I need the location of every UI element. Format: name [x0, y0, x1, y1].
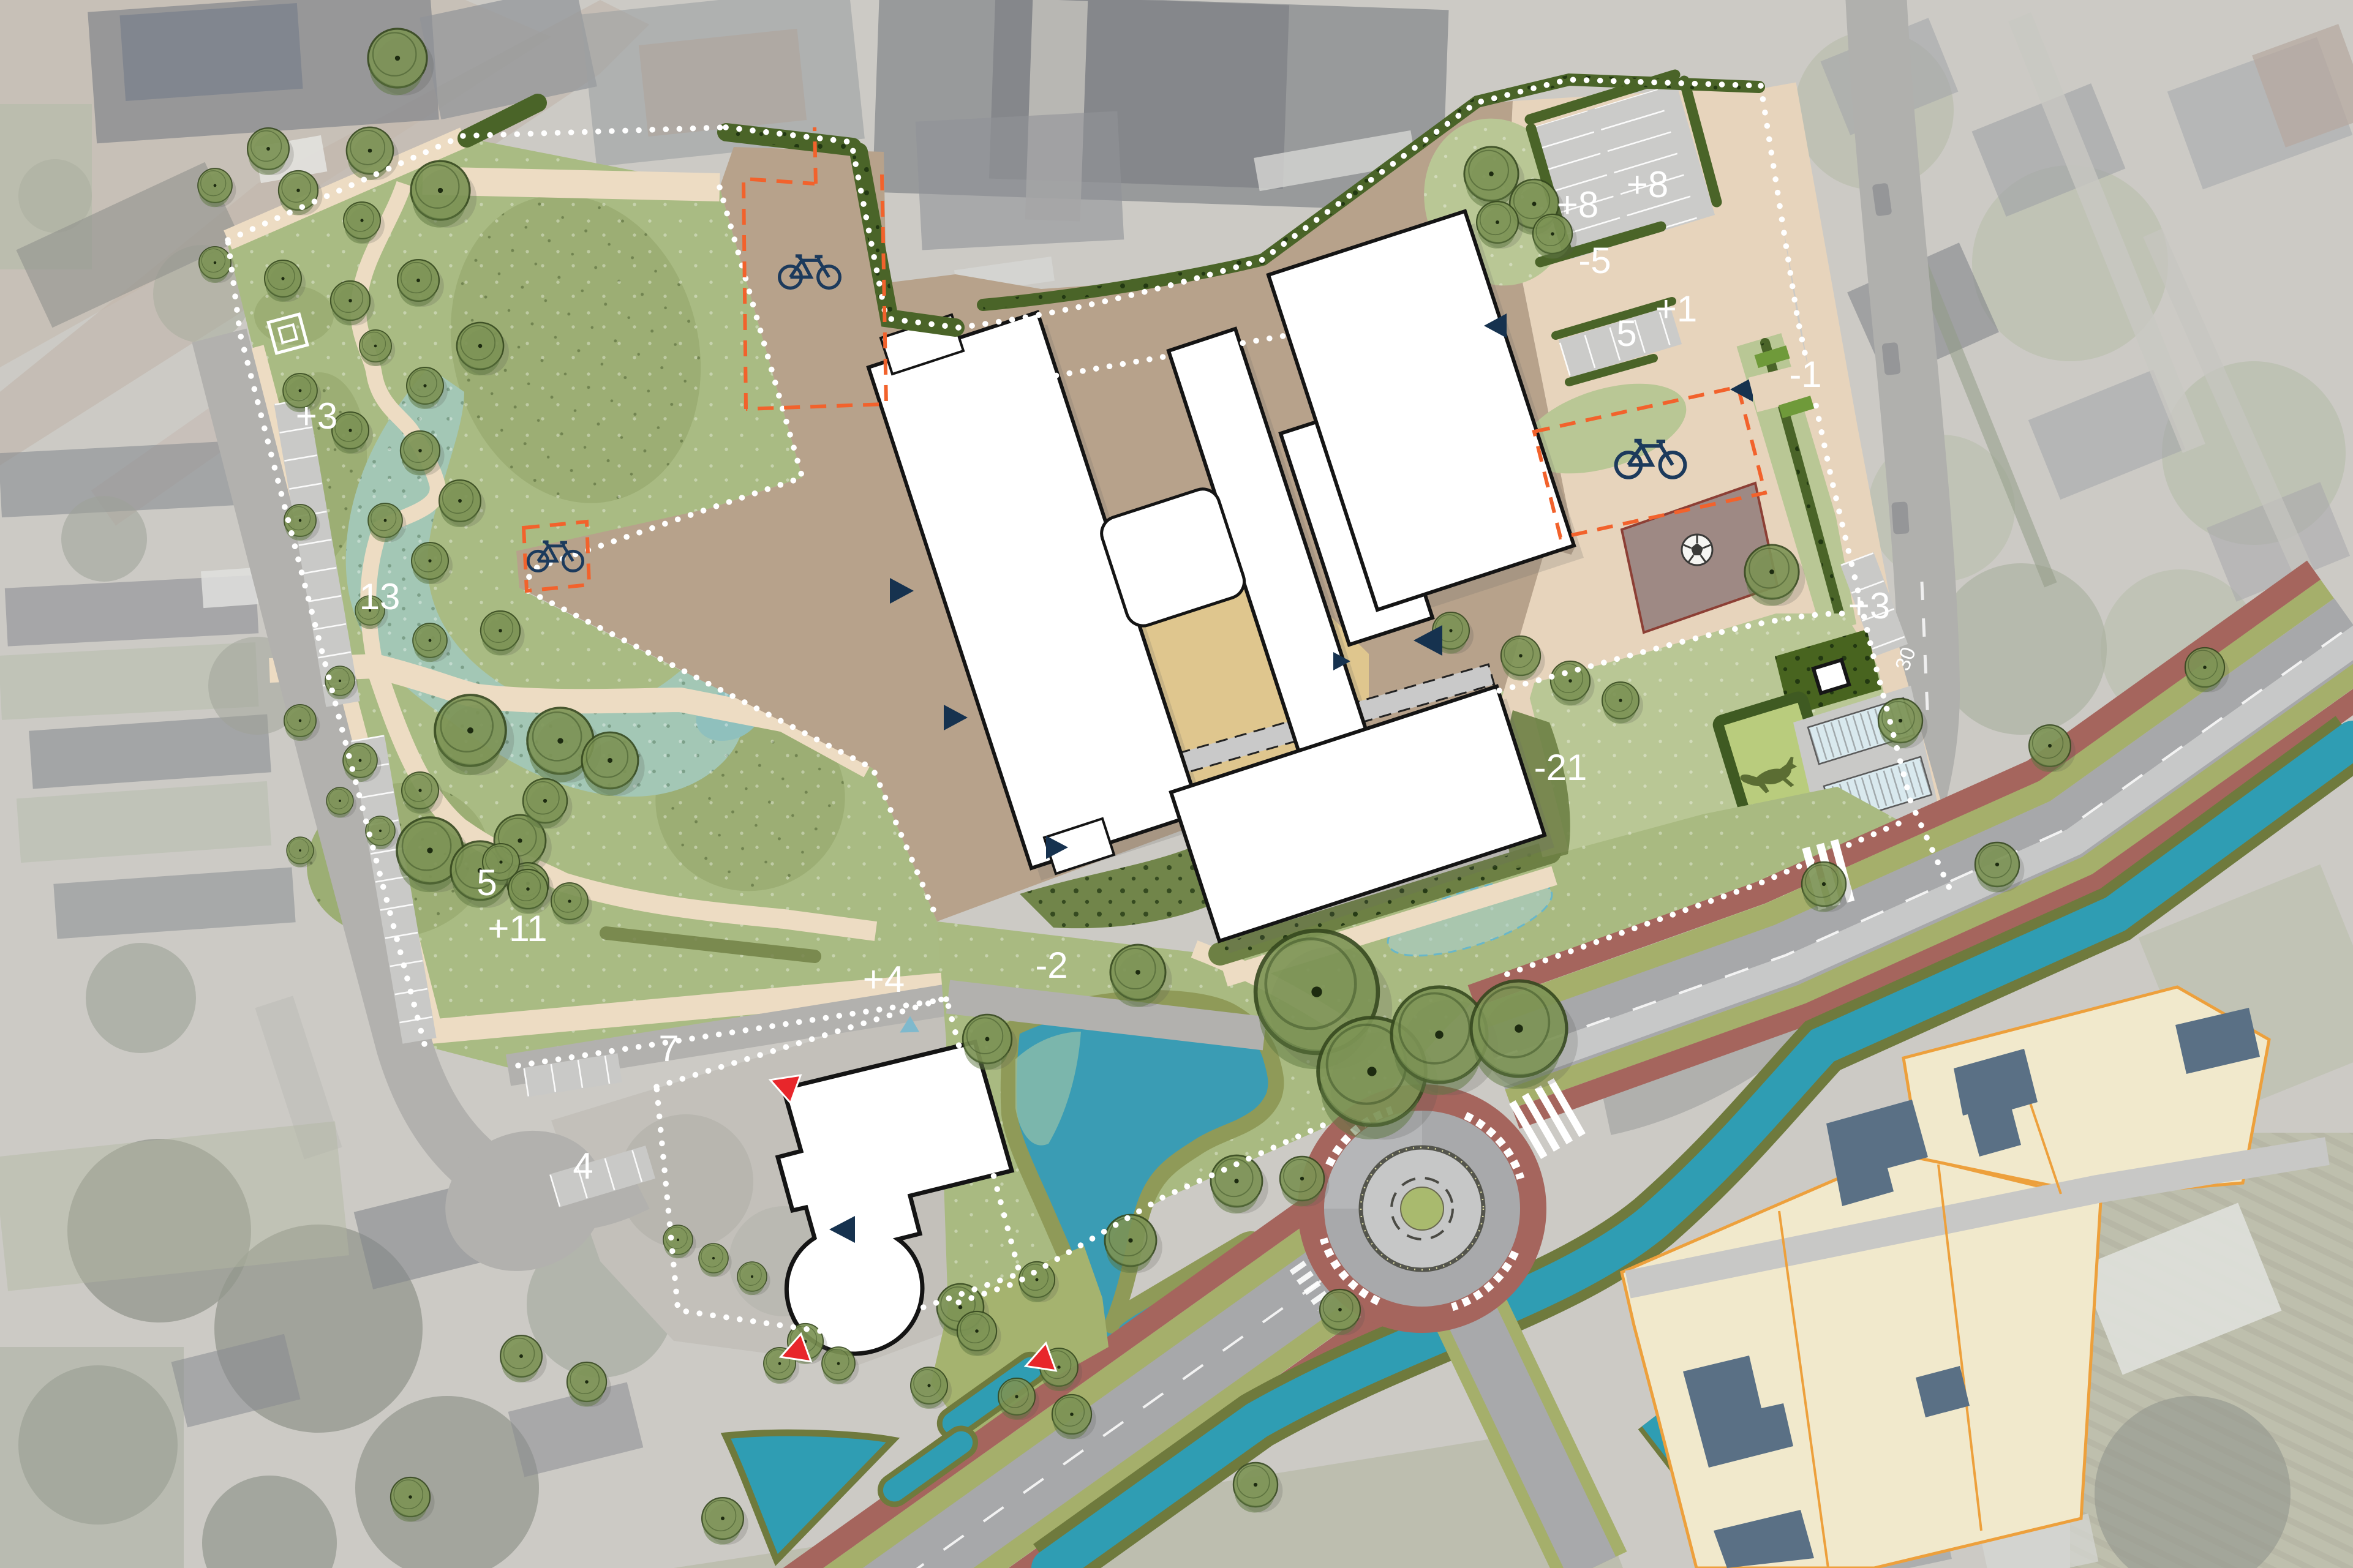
- svg-text:+3: +3: [1848, 585, 1890, 626]
- svg-text:-2: -2: [1035, 945, 1067, 986]
- svg-text:-1: -1: [1789, 354, 1821, 395]
- svg-text:+11: +11: [488, 908, 547, 949]
- svg-text:5: 5: [476, 862, 497, 903]
- svg-text:-5: -5: [1578, 240, 1611, 281]
- svg-text:+1: +1: [1655, 288, 1697, 329]
- svg-text:4: 4: [573, 1146, 593, 1187]
- svg-text:+4: +4: [863, 959, 905, 1000]
- svg-text:+8: +8: [1627, 164, 1668, 205]
- svg-text:+8: +8: [1557, 184, 1598, 225]
- svg-text:-21: -21: [1534, 747, 1587, 788]
- svg-text:7: 7: [658, 1028, 679, 1069]
- svg-text:13: 13: [360, 576, 401, 617]
- svg-text:+3: +3: [296, 396, 337, 437]
- svg-text:5: 5: [1616, 313, 1636, 354]
